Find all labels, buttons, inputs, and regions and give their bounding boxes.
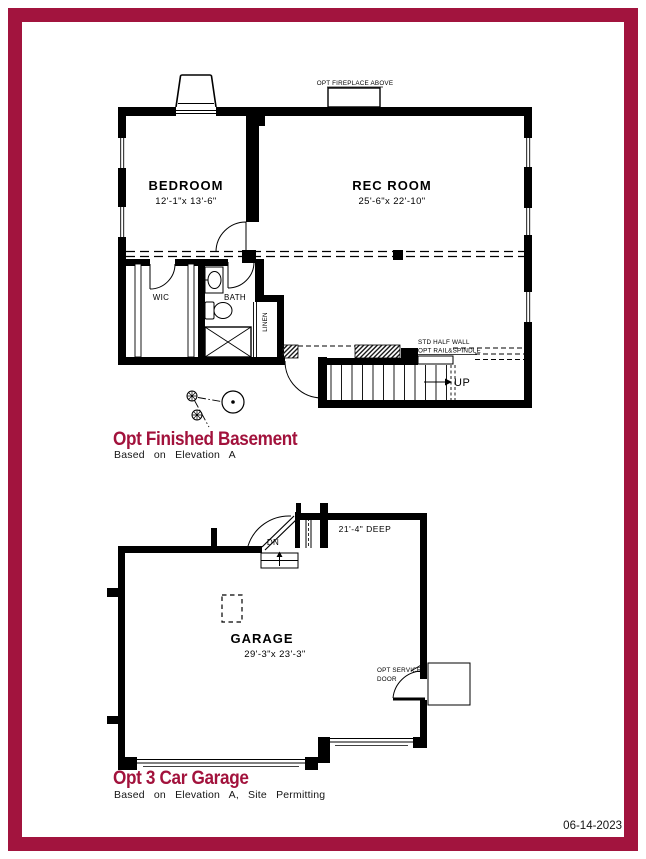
up-label: UP — [454, 377, 470, 389]
half-wall-note-1: STD HALF WALL — [418, 339, 470, 346]
garage-title: Opt 3 Car Garage — [113, 767, 249, 790]
wic-label: WIC — [153, 293, 169, 302]
basement-windows — [118, 107, 532, 322]
fireplace-outline — [327, 87, 383, 107]
basement-subtitle: Based on Elevation A — [114, 449, 236, 461]
service-note-1: OPT SERVICE — [377, 667, 421, 674]
post-outline — [222, 595, 242, 622]
depth-label: 21'-4" DEEP — [339, 524, 392, 534]
linen-label: LINEN — [262, 312, 269, 332]
sheet-date: 06-14-2023 — [563, 820, 622, 832]
garage-floor-plan: 21'-4" DEEP DN GARAGE 29'-3"x 23'-3" OPT… — [95, 495, 485, 780]
wic-door — [150, 264, 175, 289]
garage-door-openings — [137, 739, 413, 767]
bedroom-door — [216, 222, 246, 252]
toilet — [205, 302, 232, 319]
service-note-2: DOOR — [377, 676, 397, 683]
sump-symbols — [187, 391, 244, 427]
garage-dim: 29'-3"x 23'-3" — [244, 649, 305, 660]
fireplace-note: OPT FIREPLACE ABOVE — [317, 80, 393, 87]
garage-subtitle: Based on Elevation A, Site Permitting — [114, 789, 325, 801]
basement-title: Opt Finished Basement — [113, 428, 297, 451]
bath-label: BATH — [224, 293, 246, 302]
stairs-up — [331, 365, 455, 400]
rec-room-dim: 25'-6"x 22'-10" — [358, 196, 425, 207]
bedroom-label: BEDROOM — [149, 178, 224, 193]
basement-floor-plan: OPT FIREPLACE ABOVE — [95, 56, 555, 431]
stair-door — [285, 361, 322, 398]
shower — [205, 327, 251, 357]
basement-walls — [118, 107, 532, 408]
service-stoop — [428, 663, 470, 705]
dn-label: DN — [267, 538, 279, 547]
garage-label: GARAGE — [230, 631, 293, 646]
bath-door — [228, 262, 254, 288]
bedroom-dim: 12'-1"x 13'-6" — [155, 196, 216, 207]
window-well — [176, 75, 216, 107]
rec-room-label: REC ROOM — [352, 178, 432, 193]
beam-line — [126, 252, 524, 257]
entry-steps — [261, 552, 298, 569]
sink — [205, 267, 223, 293]
plan-sheet: OPT FIREPLACE ABOVE — [0, 0, 646, 859]
half-wall-note-2: OPT RAIL&SPINDLE — [418, 348, 481, 355]
